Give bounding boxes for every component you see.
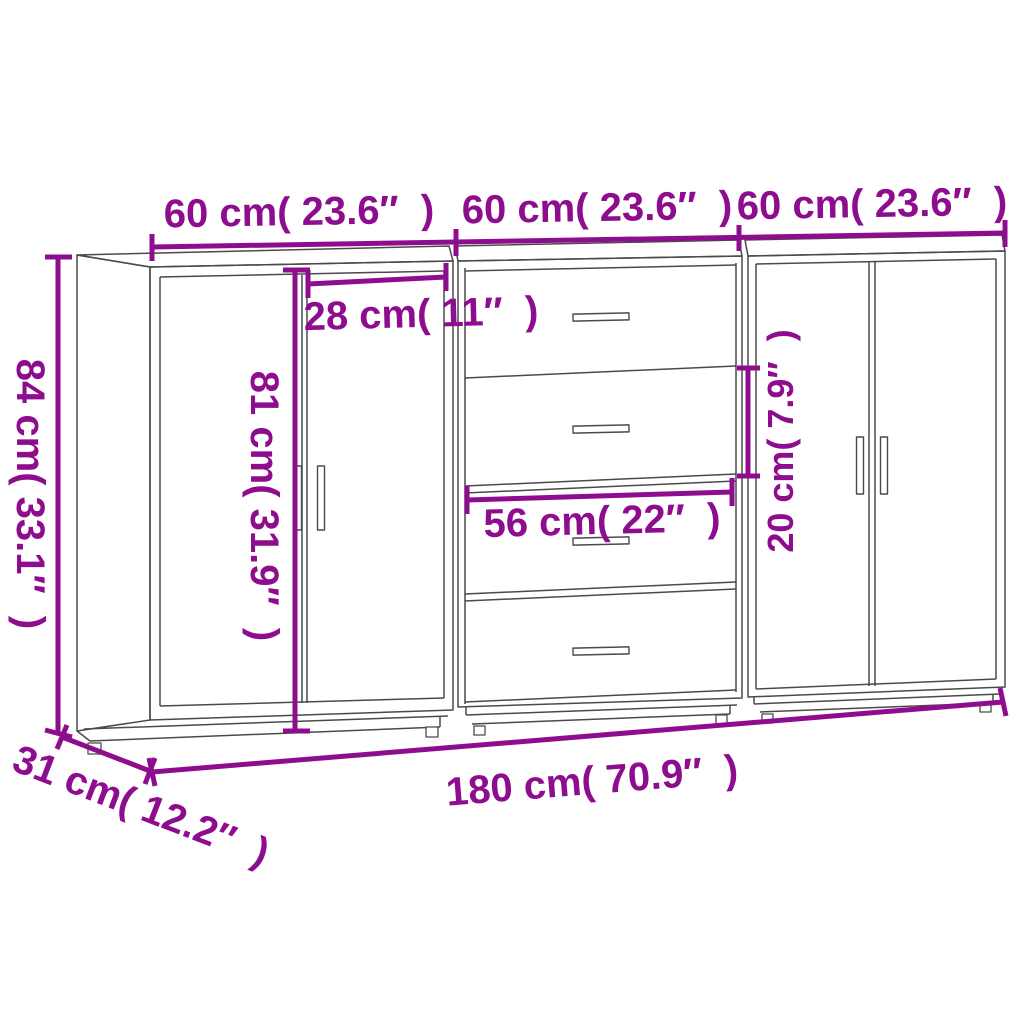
left-cabinet-foot	[426, 727, 438, 737]
product-dimension-diagram: 60 cm( 23.6″ ) 60 cm( 23.6″ ) 60 cm( 23.…	[0, 0, 1024, 1024]
left-cabinet-side-panel	[77, 255, 150, 731]
drawer-2-handle	[573, 425, 629, 433]
dim-label-height: 84 cm( 33.1″ )	[10, 359, 50, 629]
dim-label-width-left: 60 cm( 23.6″ )	[163, 190, 434, 235]
dim-door-height	[283, 270, 310, 731]
right-door-handle-right	[881, 437, 888, 494]
dim-label-door-width: 28 cm( 11″ )	[303, 291, 539, 337]
drawer-1-handle	[573, 313, 629, 321]
dim-label-width-right: 60 cm( 23.6″ )	[736, 182, 1007, 227]
drawer-4-handle	[573, 647, 629, 655]
right-door-handle-left	[857, 437, 864, 494]
left-door-handle-right	[318, 466, 325, 530]
middle-cabinet-foot	[474, 726, 485, 735]
dim-label-drawer-width: 56 cm( 22″ )	[483, 498, 721, 544]
dim-label-drawer-height: 20 cm( 7.9″ )	[763, 329, 799, 552]
dim-label-width-middle: 60 cm( 23.6″ )	[461, 186, 732, 231]
dim-label-door-height: 81 cm( 31.9″ )	[244, 371, 284, 641]
furniture-wireframe	[77, 235, 1005, 754]
